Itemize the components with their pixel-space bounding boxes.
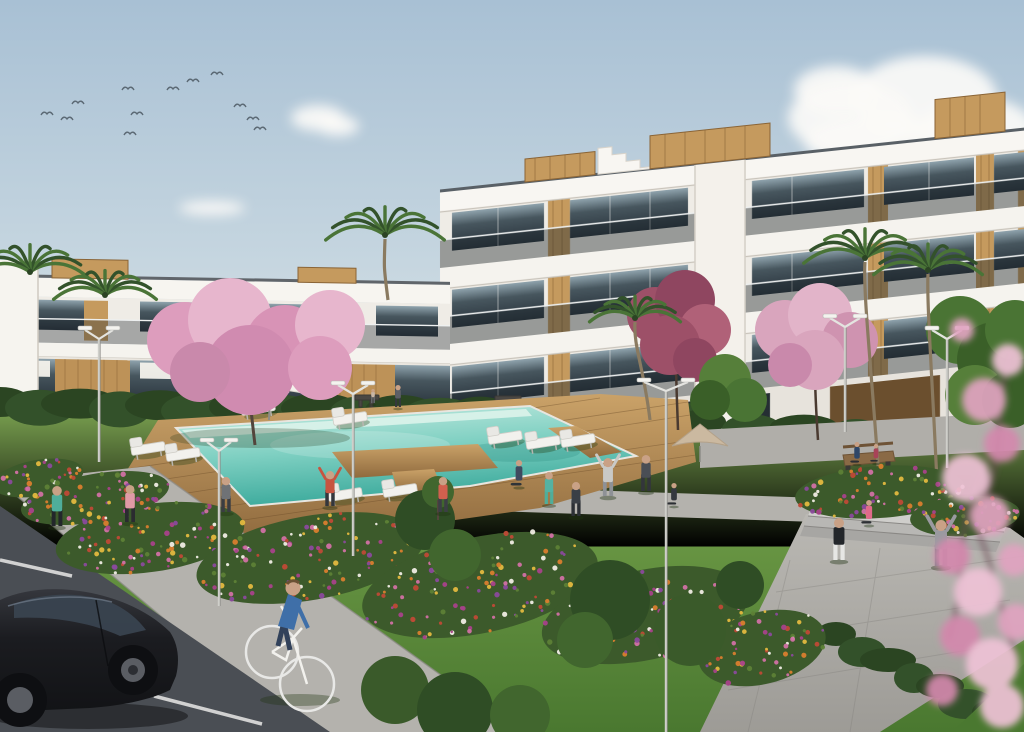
architectural-render-image <box>0 0 1024 732</box>
render-scene <box>0 0 1024 732</box>
